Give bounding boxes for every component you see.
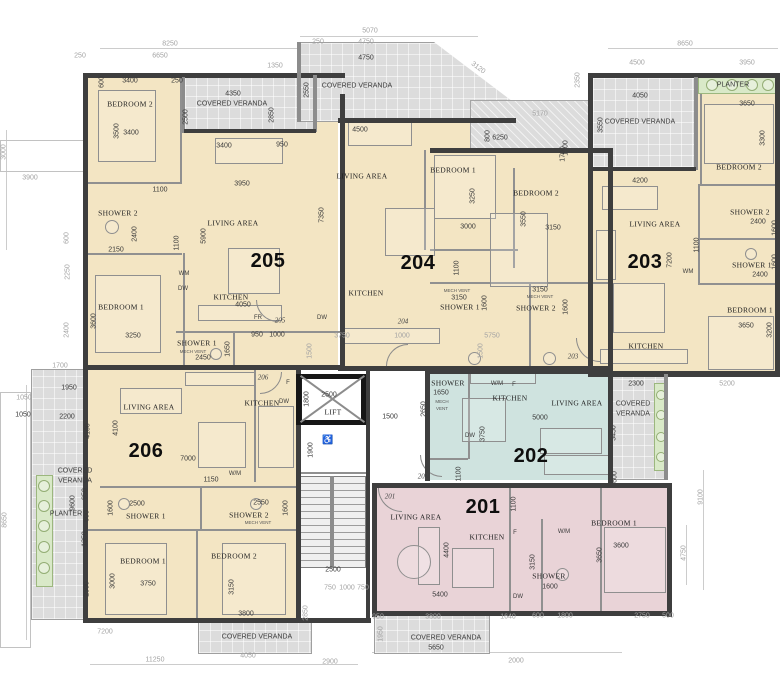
- dim-250: 250: [74, 53, 86, 60]
- furniture-8: [385, 208, 435, 256]
- dim-3750: 3750: [140, 581, 156, 588]
- dim-1000: 1000: [269, 332, 285, 339]
- partition-17: [86, 529, 298, 531]
- label-covered-veranda: COVERED VERANDA: [411, 635, 481, 642]
- dim-1100: 1100: [454, 260, 461, 275]
- dim-750: 750: [357, 585, 369, 592]
- partition-11: [700, 94, 702, 185]
- dim-1000: 1000: [339, 585, 355, 592]
- dim-3400: 3400: [123, 130, 139, 137]
- dim-1600: 1600: [563, 299, 570, 315]
- label-w-m: W/M: [491, 381, 503, 387]
- dim-3600: 3600: [91, 313, 98, 329]
- dim-2150: 2150: [108, 247, 124, 254]
- dim-201: 201: [385, 494, 396, 501]
- dim-3800: 3800: [425, 614, 441, 621]
- label-covered: COVERED: [616, 401, 651, 408]
- wall-2: [83, 618, 371, 623]
- dim-3000: 3000: [1, 144, 8, 160]
- dim-4750: 4750: [681, 545, 688, 561]
- dim-3150: 3150: [545, 225, 561, 232]
- dim-205: 205: [251, 251, 286, 271]
- dim-5200: 5200: [719, 381, 735, 388]
- label-dw: DW: [465, 433, 475, 439]
- dim-1350: 1350: [267, 63, 283, 70]
- dim-600: 600: [532, 613, 544, 620]
- label-covered-veranda: COVERED VERANDA: [605, 119, 675, 126]
- dim-1050: 1050: [16, 395, 32, 402]
- dim-3600: 3600: [613, 543, 629, 550]
- label-living-area: LIVING AREA: [123, 403, 174, 411]
- label-bedroom-1: BEDROOM 1: [98, 303, 144, 311]
- dim-600: 600: [84, 510, 91, 522]
- wall-26: [425, 369, 613, 374]
- dim-1500: 1500: [382, 414, 398, 421]
- dim-1500: 1500: [478, 343, 485, 359]
- furniture-5: [105, 220, 119, 234]
- label-shower-1: SHOWER 1: [126, 512, 166, 520]
- partition-13: [700, 238, 778, 240]
- label-wm: WM: [179, 271, 190, 277]
- furniture-13: [543, 352, 556, 365]
- dim-800: 800: [485, 130, 492, 142]
- dim-1600: 1600: [772, 220, 779, 236]
- furniture-35: [452, 548, 494, 588]
- wall-8: [297, 42, 301, 122]
- label-bedroom-1: BEDROOM 1: [727, 306, 773, 314]
- furniture-40: [38, 520, 50, 532]
- dim-1500: 1500: [307, 343, 314, 359]
- dim-1350: 1350: [82, 531, 89, 547]
- label-covered-veranda: COVERED VERANDA: [322, 83, 392, 90]
- dim-8250: 8250: [162, 41, 178, 48]
- dim-5070: 5070: [362, 28, 378, 35]
- label-lift: LIFT: [324, 408, 341, 416]
- wall-13: [588, 73, 780, 78]
- dim-5750: 5750: [484, 333, 500, 340]
- dim-3750: 3750: [334, 333, 350, 340]
- label-bedroom-2: BEDROOM 2: [211, 552, 257, 560]
- dim-5000: 5000: [532, 415, 548, 422]
- veranda-connector: [470, 100, 592, 152]
- furniture-31: [540, 428, 602, 454]
- label-wm: WM: [683, 269, 694, 275]
- label-dw: DW: [178, 286, 188, 292]
- dim-7200: 7200: [667, 252, 674, 268]
- wall-5: [313, 75, 317, 132]
- partition-20: [254, 370, 256, 482]
- label-covered: COVERED: [58, 468, 93, 475]
- dim-1100: 1100: [456, 466, 463, 481]
- dim-2500: 2500: [84, 581, 91, 597]
- wall-25: [330, 476, 334, 568]
- dim-2550: 2550: [304, 82, 311, 98]
- dim-2850: 2850: [303, 605, 310, 621]
- wheelchair-icon: ♿: [322, 436, 333, 445]
- label-w-m: W/M: [229, 471, 241, 477]
- label-veranda: VERANDA: [616, 411, 650, 418]
- dim-205: 205: [275, 318, 286, 325]
- wall-16: [588, 371, 780, 377]
- wall-3: [83, 365, 345, 370]
- dim-1600: 1600: [772, 254, 779, 270]
- dim-201: 201: [466, 497, 501, 517]
- label-dw: DW: [513, 594, 523, 600]
- dim-3150: 3150: [451, 295, 467, 302]
- dim-3150: 3150: [532, 287, 548, 294]
- dim-4400: 4400: [444, 542, 451, 558]
- label-shower-2: SHOWER 2: [516, 304, 556, 312]
- dim-203: 203: [568, 354, 579, 361]
- dim-1600: 1600: [542, 584, 558, 591]
- label-f: F: [512, 382, 516, 388]
- partition-24: [541, 519, 543, 612]
- dim-3300: 3300: [760, 130, 767, 146]
- dim-1100: 1100: [152, 187, 167, 194]
- partition-12: [700, 184, 778, 186]
- dim-8650: 8650: [677, 41, 693, 48]
- dim-6650: 6650: [152, 53, 168, 60]
- dim-3400: 3400: [122, 78, 138, 85]
- wall-33: [372, 611, 672, 616]
- dim-9100: 9100: [698, 489, 705, 505]
- dim-3950: 3950: [234, 181, 250, 188]
- label-shower-1: SHOWER 1: [177, 339, 217, 347]
- dim-4350: 4350: [225, 91, 241, 98]
- label-f: F: [286, 380, 290, 386]
- dim-3000: 3000: [460, 224, 476, 231]
- dim-3550: 3550: [521, 211, 528, 227]
- dim-1800: 1800: [304, 391, 311, 407]
- dim-4100: 4100: [85, 423, 92, 439]
- label-living-area: LIVING AREA: [390, 513, 441, 521]
- dim-950: 950: [82, 488, 89, 500]
- dim-4500: 4500: [629, 60, 645, 67]
- dim-5650: 5650: [428, 645, 444, 652]
- dim-500: 500: [662, 613, 674, 620]
- furniture-24: [258, 406, 294, 468]
- furniture-41: [38, 541, 50, 553]
- label-mech-vent: MECH VENT: [245, 521, 272, 526]
- label-shower-1: SHOWER 1: [732, 261, 772, 269]
- furniture-17: [600, 349, 688, 364]
- partition-5: [233, 333, 235, 367]
- furniture-23: [198, 422, 246, 468]
- dim-11250: 11250: [146, 657, 165, 664]
- dim-9600: 9600: [70, 495, 77, 511]
- furniture-34: [397, 545, 431, 579]
- label-living-area: LIVING AREA: [629, 220, 680, 228]
- label-shower-1: SHOWER 1: [440, 303, 480, 311]
- partition-26: [299, 472, 367, 474]
- dim-1650: 1650: [433, 390, 449, 397]
- dim-2750: 2750: [634, 613, 650, 620]
- dim-2400: 2400: [64, 322, 71, 338]
- dim-2850: 2850: [269, 107, 276, 123]
- dim-950: 950: [276, 142, 288, 149]
- dim-2200: 2200: [59, 414, 75, 421]
- wall-17: [694, 77, 698, 170]
- dim-1950: 1950: [61, 385, 77, 392]
- dim-7200: 7200: [97, 629, 113, 636]
- dim-3750: 3750: [480, 426, 487, 442]
- partition-15: [698, 184, 700, 285]
- label-living-area: LIVING AREA: [336, 172, 387, 180]
- dim-3650: 3650: [739, 101, 755, 108]
- dim-1650: 1650: [225, 341, 232, 357]
- label-planter: PLANTER: [50, 511, 82, 518]
- dimension-line-2: [608, 48, 778, 49]
- dim-600: 600: [99, 76, 106, 88]
- label-bedroom-2: BEDROOM 2: [107, 100, 153, 108]
- wall-24: [361, 374, 366, 425]
- label-living-area: LIVING AREA: [551, 399, 602, 407]
- dim-3150: 3150: [229, 579, 236, 595]
- dim-600: 600: [64, 232, 71, 244]
- furniture-27: [118, 498, 130, 510]
- furniture-20: [745, 248, 757, 260]
- wall-4: [340, 94, 345, 370]
- dim-3200: 3200: [767, 322, 774, 338]
- dim-1800: 1800: [557, 613, 573, 620]
- dim-2500: 2500: [183, 109, 190, 125]
- dim-204: 204: [401, 253, 436, 273]
- wall-23: [296, 374, 301, 425]
- dim-4500: 4500: [352, 127, 368, 134]
- furniture-10: [490, 213, 548, 287]
- label-f: F: [513, 530, 517, 536]
- label-fr: FR: [254, 315, 262, 321]
- dim-3650: 3650: [597, 547, 604, 563]
- dimension-line-1: [300, 36, 478, 37]
- furniture-39: [38, 500, 50, 512]
- dim-1100: 1100: [694, 237, 701, 252]
- label-kitchen: KITCHEN: [628, 342, 663, 350]
- dim-2350: 2350: [575, 72, 582, 88]
- dim-750: 750: [324, 585, 336, 592]
- furniture-36: [604, 527, 666, 593]
- dim-8650: 8650: [2, 512, 9, 528]
- dim-3900: 3900: [22, 175, 38, 182]
- dim-4100: 4100: [113, 420, 120, 436]
- dim-2500: 2500: [321, 392, 337, 399]
- dim-2000: 2000: [508, 658, 524, 665]
- dim-2400: 2400: [752, 272, 768, 279]
- label-mech: MECH: [435, 400, 448, 405]
- furniture-6: [210, 348, 222, 360]
- dim-2300: 2300: [628, 381, 644, 388]
- label-bedroom-1: BEDROOM 1: [591, 519, 637, 527]
- label-bedroom-2: BEDROOM 2: [716, 163, 762, 171]
- label-dw: DW: [279, 399, 289, 405]
- dim-2900: 2900: [322, 659, 338, 666]
- furniture-21: [185, 372, 255, 386]
- wall-20: [366, 370, 370, 620]
- label-dw: DW: [317, 315, 327, 321]
- label-vent: VENT: [436, 407, 448, 412]
- dim-3250: 3250: [470, 188, 477, 204]
- label-shower-2: SHOWER 2: [98, 209, 138, 217]
- dim-202: 202: [514, 446, 549, 466]
- label-shower-2: SHOWER 2: [730, 208, 770, 216]
- dim-5400: 5400: [432, 592, 448, 599]
- label-kitchen: KITCHEN: [213, 293, 248, 301]
- dim-1600: 1600: [482, 295, 489, 311]
- dim-1700: 1700: [563, 140, 570, 156]
- label-kitchen: KITCHEN: [492, 394, 527, 402]
- label-kitchen: KITCHEN: [469, 533, 504, 541]
- dim-3800: 3800: [238, 611, 254, 618]
- dim-950: 950: [251, 332, 263, 339]
- dim-1900: 1900: [308, 442, 315, 458]
- furniture-50: [762, 79, 774, 91]
- dim-2500: 2500: [325, 567, 341, 574]
- partition-18: [196, 529, 198, 619]
- wall-29: [664, 374, 668, 480]
- dim-1600: 1600: [283, 500, 290, 516]
- furniture-1: [95, 275, 161, 353]
- label-covered-veranda: COVERED VERANDA: [222, 634, 292, 641]
- dim-2400: 2400: [132, 226, 139, 242]
- dim-6250: 6250: [492, 135, 508, 142]
- dim-206: 206: [129, 441, 164, 461]
- wall-32: [667, 483, 672, 617]
- label-covered-veranda: COVERED VERANDA: [197, 101, 267, 108]
- label-shower-2: SHOWER 2: [229, 511, 269, 519]
- dim-3500: 3500: [114, 123, 121, 139]
- dim-3450: 3450: [611, 425, 618, 441]
- label-shower: SHOWER: [532, 572, 565, 580]
- dim-3550: 3550: [598, 117, 605, 133]
- wall-14: [588, 73, 593, 375]
- dim-4050: 4050: [240, 653, 256, 660]
- wall-7: [184, 129, 316, 133]
- dim-5170: 5170: [532, 111, 548, 118]
- partition-1: [86, 253, 182, 255]
- label-mech-vent: MECH VENT: [527, 295, 554, 300]
- furniture-38: [38, 480, 50, 492]
- dim-2400: 2400: [750, 219, 766, 226]
- dim-2250: 2250: [65, 264, 72, 280]
- dim-3000: 3000: [110, 573, 117, 589]
- dim-204: 204: [398, 319, 409, 326]
- wall-31: [372, 483, 377, 617]
- dim-2500: 2500: [129, 501, 145, 508]
- partition-14: [700, 283, 778, 285]
- dim-4050: 4050: [632, 93, 648, 100]
- dim-1000: 1000: [394, 333, 410, 340]
- furniture-11: [344, 328, 440, 344]
- dim-3650: 3650: [738, 323, 754, 330]
- dim-1640: 1640: [500, 614, 516, 621]
- wall-22: [296, 420, 366, 425]
- dim-1100: 1100: [511, 496, 518, 511]
- dim-3950: 3950: [739, 60, 755, 67]
- partition-16: [100, 486, 298, 488]
- dim-2650: 2650: [421, 401, 428, 417]
- partition-0: [86, 182, 182, 184]
- wall-11: [608, 148, 613, 372]
- label-bedroom-1: BEDROOM 1: [120, 557, 166, 565]
- dim-5900: 5900: [201, 228, 208, 244]
- dim-1700: 1700: [52, 363, 68, 370]
- dim-250: 250: [171, 78, 183, 85]
- wall-27: [425, 369, 430, 481]
- dimension-line-5: [90, 664, 358, 665]
- dim-2450: 2450: [195, 355, 211, 362]
- label-veranda: VERANDA: [58, 478, 92, 485]
- label-kitchen: KITCHEN: [244, 399, 279, 407]
- label-bedroom-1: BEDROOM 1: [430, 166, 476, 174]
- wall-18: [592, 167, 696, 171]
- label-kitchen: KITCHEN: [348, 289, 383, 297]
- dim-7350: 7350: [319, 207, 326, 223]
- dim-600: 600: [612, 471, 619, 483]
- dim-3150: 3150: [530, 554, 537, 570]
- floor-plan: 8250250665013505070250475086504500395031…: [0, 0, 780, 674]
- dim-3400: 3400: [216, 143, 232, 150]
- furniture-16: [613, 283, 665, 333]
- dim-1050: 1050: [15, 412, 31, 419]
- exterior-outline-top-left: [0, 140, 86, 172]
- partition-19: [200, 486, 202, 530]
- dim-4750: 4750: [358, 55, 374, 62]
- furniture-15: [596, 230, 616, 280]
- dim-206: 206: [258, 375, 269, 382]
- dim-7000: 7000: [180, 456, 196, 463]
- label-living-area: LIVING AREA: [207, 219, 258, 227]
- dim-1950: 1950: [378, 626, 385, 642]
- furniture-32: [544, 455, 610, 475]
- label-bedroom-2: BEDROOM 2: [513, 189, 559, 197]
- dim-4750: 4750: [358, 39, 374, 46]
- dim-1100: 1100: [174, 235, 181, 250]
- dim-203: 203: [628, 252, 663, 272]
- dim-250: 250: [312, 39, 324, 46]
- dim-1600: 1600: [108, 500, 115, 516]
- label-mech-vent: MECH VENT: [444, 289, 471, 294]
- dim-202: 202: [418, 474, 429, 481]
- wall-10: [430, 148, 612, 153]
- dim-4200: 4200: [632, 178, 648, 185]
- dim-4050: 4050: [235, 302, 251, 309]
- label-w-m: W/M: [558, 529, 570, 535]
- dim-3250: 3250: [125, 333, 141, 340]
- label-shower: SHOWER: [431, 379, 464, 387]
- wall-30: [372, 483, 672, 488]
- furniture-42: [38, 562, 50, 574]
- dim-1150: 1150: [203, 477, 218, 484]
- wall-9: [338, 118, 516, 123]
- dim-2550: 2550: [253, 500, 269, 507]
- label-planter: PLANTER: [717, 82, 749, 89]
- dim-950: 950: [372, 614, 384, 621]
